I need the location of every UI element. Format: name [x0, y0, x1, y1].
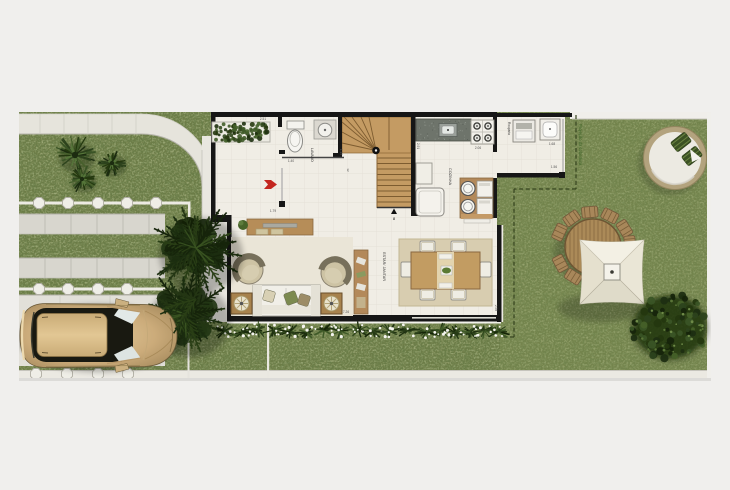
svg-text:1.68: 1.68 [549, 142, 555, 146]
svg-text:2.91: 2.91 [416, 143, 420, 149]
svg-text:ESTAR/ JANTAR: ESTAR/ JANTAR [382, 252, 386, 281]
svg-text:2.58: 2.58 [494, 305, 498, 311]
svg-text:2.51: 2.51 [260, 117, 266, 121]
svg-text:1.19: 1.19 [339, 149, 343, 155]
svg-text:7.26: 7.26 [343, 310, 349, 314]
svg-text:2.06: 2.06 [475, 146, 481, 150]
svg-text:COZINHA: COZINHA [448, 168, 452, 186]
svg-text:LAVABO: LAVABO [310, 148, 314, 162]
svg-text:1.56: 1.56 [551, 165, 557, 169]
svg-text:1.40: 1.40 [288, 159, 294, 163]
svg-text:1.79: 1.79 [270, 209, 276, 213]
svg-text:32: 32 [346, 168, 350, 172]
svg-text:Projeção da cobertura: Projeção da cobertura [578, 124, 583, 166]
svg-text:Rouparia: Rouparia [507, 122, 511, 135]
